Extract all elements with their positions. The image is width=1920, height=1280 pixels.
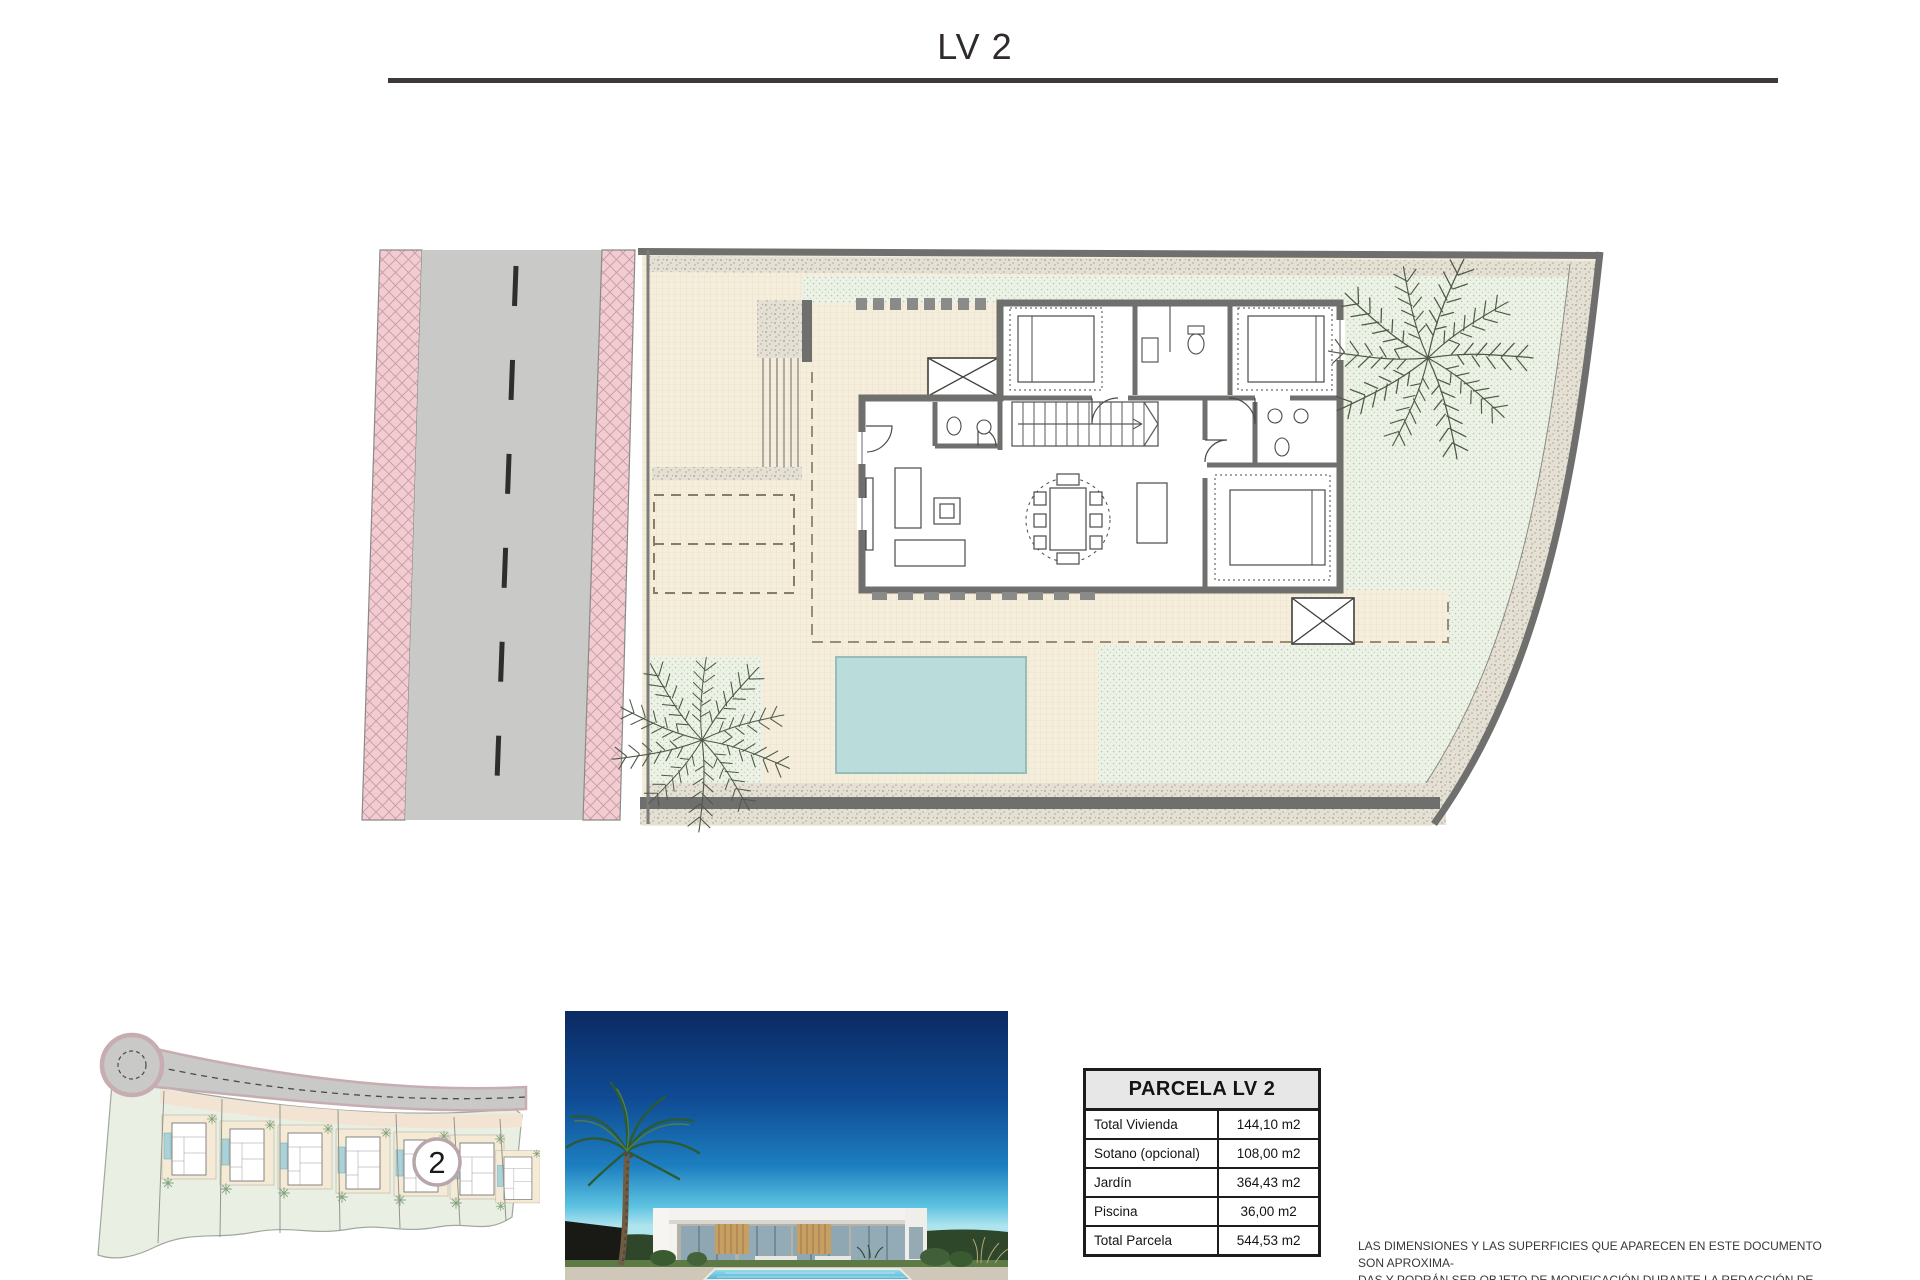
row-value: 144,10 m2 — [1218, 1111, 1318, 1139]
plot-marker: 2 — [414, 1139, 460, 1185]
row-value: 364,43 m2 — [1218, 1168, 1318, 1197]
boundary-wall-bottom — [640, 797, 1440, 809]
page-title: LV 2 — [875, 26, 1075, 68]
disclaimer-line: DAS Y PODRÁN SER OBJETO DE MODIFICACIÓN … — [1358, 1272, 1840, 1280]
row-label: Sotano (opcional) — [1086, 1139, 1218, 1168]
ac-pad-rear — [1292, 598, 1354, 644]
disclaimer-line: LAS DIMENSIONES Y LAS SUPERFICIES QUE AP… — [1358, 1238, 1840, 1272]
row-value: 108,00 m2 — [1218, 1139, 1318, 1168]
table-row: Total Parcela 544,53 m2 — [1086, 1226, 1318, 1254]
disclaimer: LAS DIMENSIONES Y LAS SUPERFICIES QUE AP… — [1358, 1238, 1840, 1280]
swimming-pool — [836, 657, 1026, 773]
road — [405, 250, 602, 820]
site-plan-drawing — [350, 240, 1640, 840]
table-row: Piscina 36,00 m2 — [1086, 1197, 1318, 1226]
site-overview-map: 2 — [60, 1025, 540, 1280]
row-value: 544,53 m2 — [1218, 1226, 1318, 1254]
villa-photo — [565, 1011, 1008, 1280]
table-row: Jardín 364,43 m2 — [1086, 1168, 1318, 1197]
area-table: PARCELA LV 2 Total Vivienda 144,10 m2 So… — [1083, 1068, 1321, 1257]
row-label: Jardín — [1086, 1168, 1218, 1197]
row-label: Total Parcela — [1086, 1226, 1218, 1254]
row-label: Total Vivienda — [1086, 1111, 1218, 1139]
garden-pool-side — [650, 657, 762, 783]
street — [362, 250, 635, 820]
ac-pad-entry — [928, 358, 998, 396]
area-table-header: PARCELA LV 2 — [1086, 1071, 1318, 1111]
plot-marker-number: 2 — [428, 1145, 445, 1180]
title-rule — [388, 78, 1778, 83]
pool — [704, 1269, 911, 1280]
table-row: Total Vivienda 144,10 m2 — [1086, 1111, 1318, 1139]
site-overview-drawing: 2 — [60, 1025, 540, 1280]
row-value: 36,00 m2 — [1218, 1197, 1318, 1226]
villa-photo-drawing — [565, 1011, 1008, 1280]
site-plan — [350, 240, 1640, 840]
porch-slats — [872, 592, 1095, 600]
row-label: Piscina — [1086, 1197, 1218, 1226]
table-row: Sotano (opcional) 108,00 m2 — [1086, 1139, 1318, 1168]
plan-sheet: LV 2 — [0, 0, 1920, 1280]
